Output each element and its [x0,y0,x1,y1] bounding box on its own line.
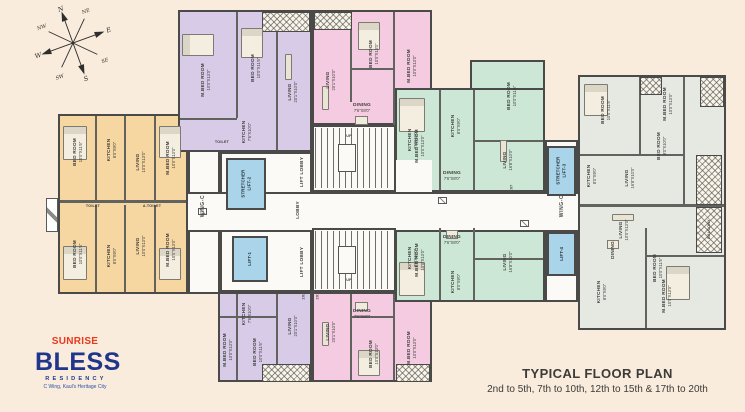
partition-wall [580,154,684,156]
partition-wall [645,228,647,328]
stair-landing-bottom [338,246,356,274]
room-label: M.BED ROOM10'0"X13'0" [407,331,417,365]
room-dims: 10'0"X11'6" [607,96,612,124]
bed-icon [182,34,214,56]
room-label: M.BED ROOM10'0"X13'0" [166,141,176,175]
partition-wall [60,200,186,203]
room-dims: 10'0"X11'6" [79,240,84,268]
room-dims: 7'6"X10'0" [248,303,253,326]
partition-wall [180,118,237,120]
room-dims: 10'0"X11'6" [513,82,518,110]
room-dims: 10'0"X11'6" [79,138,84,166]
room-label: KITCHEN8'0"X9'0" [451,115,461,138]
room-dims: 10'0"X13'0" [375,40,380,68]
balcony-hatch [700,77,724,107]
balcony-hatch [696,155,722,205]
room-label: KITCHEN7'6"X10'0" [242,303,252,326]
compass-rose: N NE E SE S SW W NW [30,2,116,84]
balcony-hatch [262,364,310,382]
room-label: BED ROOM10'0"X13'0" [369,40,379,68]
compass-label-w: W [34,50,44,60]
project-subtitle-residency: RESIDENCY [37,376,115,382]
room-dims: 10'0"X11'6" [259,338,264,366]
room-label: LIVING16'8"X10'0" [625,168,635,189]
partition-wall [95,116,97,201]
corridor-green-link [396,160,432,194]
plan-title: TYPICAL FLOOR PLAN [450,366,745,381]
compass-label-nw: NW [35,23,48,33]
room-label: KITCHEN7'6"X10'0" [242,121,252,144]
flat-number: 207 [510,185,515,192]
partition-wall [473,228,475,300]
room-dims: 10'0"X13'0" [207,63,212,97]
partition-wall [154,205,156,292]
room-label: LIVING10'0"X13'0" [136,152,146,173]
room-dims: 20'1"X10'0" [294,82,299,103]
plan-title-block: TYPICAL FLOOR PLAN 2nd to 5th, 7th to 10… [450,366,745,395]
room-label: BALCONY [707,219,711,239]
room-dims: 20'1"X10'0" [332,70,337,91]
room-label: KITCHEN8'0"X9'0" [107,245,117,268]
room-label: TOILET [215,140,229,144]
room-dims: 10'0"X13'0" [142,152,147,173]
compass-label-n: N [56,4,65,14]
stretcher-lift-2: STRETCHER LIFT-2 [226,158,266,210]
room-dims: 20'1"X10'0" [294,316,299,337]
brand-sunrise: SUNRISE [35,337,115,347]
partition-wall [475,140,543,142]
room-label: M.BED ROOM10'0"X13'0" [201,63,211,97]
compass-label-se: SE [101,57,110,65]
room-dims: 16'8"X10'0" [509,150,514,171]
room-label: KITCHEN8'0"X9'0" [451,271,461,294]
room-label: DINING [611,241,617,259]
room-dims: 8'0"X9'0" [593,165,598,188]
room-dims: 8'0"X10'0" [663,132,668,160]
room-label: DINING7'6"X8'0" [353,103,371,113]
room-dims: 7'6"X8'0" [353,315,371,320]
partition-wall [236,294,238,380]
wing-label-right: WING-C [559,195,565,217]
room-label: BED ROOM10'0"X11'6" [73,138,83,166]
compass-arrow-n [60,12,67,21]
room-label: M.BED ROOM10'0"X13'0" [223,333,233,367]
room-label: BED ROOM10'0"X11'6" [73,240,83,268]
compass-arrow-s [79,65,86,74]
partition-wall [236,12,238,118]
project-title-bless: BLESS [35,349,115,375]
lift-1-label: LIFT-1 [247,252,253,266]
duct-mark [46,198,58,232]
balcony-hatch [314,12,352,30]
sofa-icon [285,54,292,80]
lift-4-label: LIFT-4 [559,247,565,261]
stairs-up-label: UP [346,278,352,282]
balcony-hatch [640,77,662,95]
lift-4: LIFT-4 [547,232,576,276]
room-dims: 16'8"X10'0" [509,252,514,273]
room-label: LIVING20'1"X10'0" [288,82,298,103]
room-label: M.BED ROOM10'0"X13'0" [662,279,672,313]
room-label: KITCHEN8'0"X9'0" [107,139,117,162]
duct-mark [438,197,447,204]
lift-lobby-text: LIFT LOBBY [300,247,306,277]
wing-label-left: WING-C [200,195,206,217]
partition-wall [124,116,126,201]
stair-landing-top [338,144,356,172]
plan-floors-subtitle: 2nd to 5th, 7th to 10th, 12th to 15th & … [450,384,745,395]
lobby-text: LOBBY [296,201,302,219]
lift-1: LIFT-1 [232,236,268,282]
room-name: BALCONY [707,219,711,239]
stretcher-lift-3: STRETCHER LIFT-3 [547,146,576,196]
room-dims: 10'0"X13'0" [229,333,234,367]
room-dims: 10'0"X13'0" [625,220,630,241]
room-dims: 10'0"X11'6" [257,54,262,82]
compass-label-ne: NE [80,7,91,16]
room-dims: 8'0"X9'0" [457,271,462,294]
lift-lobby-label: LIFT LOBBY [300,157,306,187]
compass-label-e: E [104,25,112,35]
room-label: BED ROOM10'0"X11'6" [653,254,663,282]
room-dims: 20'1"X10'0" [332,322,337,343]
room-dims: 7'6"X8'0" [353,109,371,114]
room-name: A.TOILET [143,204,161,208]
room-label: LIVING20'1"X10'0" [288,316,298,337]
room-dims: 7'6"X8'0" [443,177,461,182]
up-text: UP [346,134,352,138]
balcony-hatch [262,12,310,32]
wing-label-text: WING-C [559,195,565,217]
room-dims: 16'8"X10'0" [631,168,636,189]
room-dims: 8'0"X9'0" [603,281,608,304]
room-label: BED ROOM10'0"X13'0" [369,340,379,368]
room-label: LIVING10'0"X13'0" [619,220,629,241]
balcony-hatch [396,364,430,382]
room-dims: 7'6"X10'0" [248,121,253,144]
room-label: DINING7'6"X8'0" [443,171,461,181]
room-label: BED ROOM10'0"X11'6" [251,54,261,82]
partition-wall [352,68,394,70]
room-name: TOILET [215,140,229,144]
compass-label-sw: SW [55,73,66,82]
room-dims: 10'0"X13'0" [669,87,674,121]
partition-wall [350,294,352,380]
flat-number-tag: 202 [302,293,307,300]
room-name: TOILET [86,204,100,208]
bed-icon [399,98,425,132]
room-label: BED ROOM10'0"X11'6" [253,338,263,366]
partition-wall [439,90,441,190]
dining-table-icon [355,116,368,125]
room-name: DINING [611,241,617,259]
room-dims: 8'0"X9'0" [457,115,462,138]
room-dims: 10'0"X13'0" [172,233,177,267]
room-label: M.BED ROOM10'0"X13'0" [407,49,417,83]
room-dims: 10'0"X13'0" [413,331,418,365]
room-dims: 10'0"X13'0" [413,49,418,83]
partition-wall [439,228,441,300]
room-label: M.BED ROOM10'0"X13'0" [663,87,673,121]
lift-lobby-label: LIFT LOBBY [300,247,306,277]
room-label: A.TOILET [143,204,161,208]
room-label: BED ROOM8'0"X10'0" [657,132,667,160]
floor-plan-canvas: N NE E SE S SW W NW STRETCHER LIFT-2 LIF… [0,0,745,412]
room-dims: 8'0"X9'0" [113,245,118,268]
compass-ray-swne [49,19,98,68]
room-dims: 10'0"X11'6" [659,254,664,282]
room-dims: 10'0"X13'0" [421,129,426,163]
room-dims: 10'0"X13'0" [421,243,426,277]
flat-number-tag: 207 [510,185,515,192]
room-label: KITCHEN8'0"X9'0" [597,281,607,304]
partition-wall [154,116,156,201]
lobby-label: LOBBY [296,201,302,219]
room-dims: 7'6"X8'0" [443,241,461,246]
room-label: M.BED ROOM10'0"X13'0" [415,129,425,163]
room-label: KITCHEN8'0"X9'0" [587,165,597,188]
room-label: LIVING10'0"X13'0" [136,236,146,257]
room-dims: 10'0"X13'0" [668,279,673,313]
partition-wall [393,294,395,380]
project-address: C Wing, Kaul's Heritage City [35,384,115,390]
room-dims: 10'0"X13'0" [172,141,177,175]
room-label: LIVING16'8"X10'0" [503,252,513,273]
brand-block: SUNRISE BLESS RESIDENCY C Wing, Kaul's H… [35,337,115,390]
room-label: M.BED ROOM10'0"X13'0" [415,243,425,277]
room-label: BED ROOM10'0"X11'6" [601,96,611,124]
up-text: UP [346,278,352,282]
wing-label-text: WING-C [200,195,206,217]
partition-wall [124,205,126,292]
room-dims: 8'0"X9'0" [113,139,118,162]
compass-arrow-e [95,30,104,37]
compass-label-s: S [83,74,90,83]
room-dims: 10'0"X13'0" [142,236,147,257]
flat-number: 202 [302,293,307,300]
lift-lobby-text: LIFT LOBBY [300,157,306,187]
room-label: TOILET [86,204,100,208]
duct-mark [520,220,529,227]
flat-number: 201 [316,293,321,300]
room-label: BED ROOM10'0"X11'6" [507,82,517,110]
room-label: M.BED ROOM10'0"X13'0" [166,233,176,267]
compass-arrow-w [42,49,51,56]
partition-wall [683,77,685,205]
room-label: LIVING20'1"X10'0" [326,70,336,91]
stretcher-lift-3-label: STRETCHER LIFT-3 [556,157,567,185]
stretcher-lift-2-label: STRETCHER LIFT-2 [240,170,251,198]
room-label: LIVING20'1"X10'0" [326,322,336,343]
room-label: DINING7'6"X8'0" [353,309,371,319]
flat-number-tag: 201 [316,293,321,300]
partition-wall [276,12,278,150]
room-dims: 10'0"X13'0" [375,340,380,368]
room-label: DINING7'6"X8'0" [443,235,461,245]
partition-wall [95,205,97,292]
room-label: LIVING16'8"X10'0" [503,150,513,171]
stairs-up-label: UP [346,134,352,138]
